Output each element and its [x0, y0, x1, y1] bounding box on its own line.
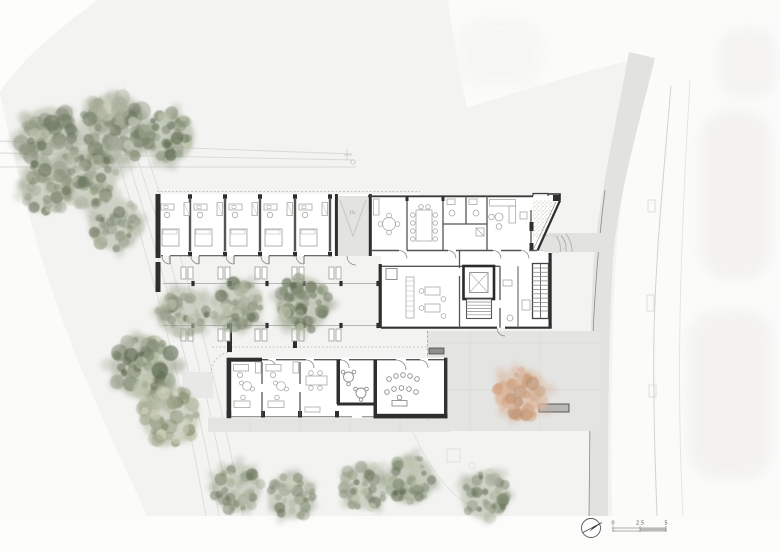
garden-bench — [218, 329, 223, 341]
breezeway: 1% — [335, 194, 372, 265]
pergola-post — [265, 323, 268, 328]
tree — [338, 461, 388, 514]
elevator — [464, 266, 495, 299]
garden-bench — [336, 329, 341, 341]
stair-east — [533, 264, 549, 319]
scale-label-5: 5 — [664, 521, 667, 527]
south-wing — [211, 347, 448, 418]
south-walkway — [208, 418, 450, 433]
pergola-post — [376, 281, 379, 286]
stair-central — [467, 299, 492, 319]
ramp-slope-label: 1% — [349, 210, 356, 215]
garden-bench — [262, 329, 267, 341]
garden-bench — [218, 267, 223, 279]
central-wing — [368, 194, 560, 337]
garden-bench — [188, 267, 193, 279]
scale-label-2-5: 2.5 — [636, 521, 644, 527]
garden-bench — [255, 329, 260, 341]
scale-label-0: 0 — [611, 521, 614, 527]
garden-bench — [329, 329, 334, 341]
garden-bench-small — [429, 348, 444, 354]
pergola-post — [191, 281, 194, 286]
site-plan-sheet: 1% — [0, 0, 780, 552]
garden-bench — [262, 267, 267, 279]
garden-bench — [181, 267, 186, 279]
pergola-post — [376, 323, 379, 328]
pergola-post — [265, 281, 268, 286]
pergola-post — [339, 323, 342, 328]
garden-bench — [329, 267, 334, 279]
site-plan-drawing: 1% — [0, 0, 780, 552]
pergola-post — [339, 281, 342, 286]
garden-bench — [336, 267, 341, 279]
garden-bench — [225, 267, 230, 279]
